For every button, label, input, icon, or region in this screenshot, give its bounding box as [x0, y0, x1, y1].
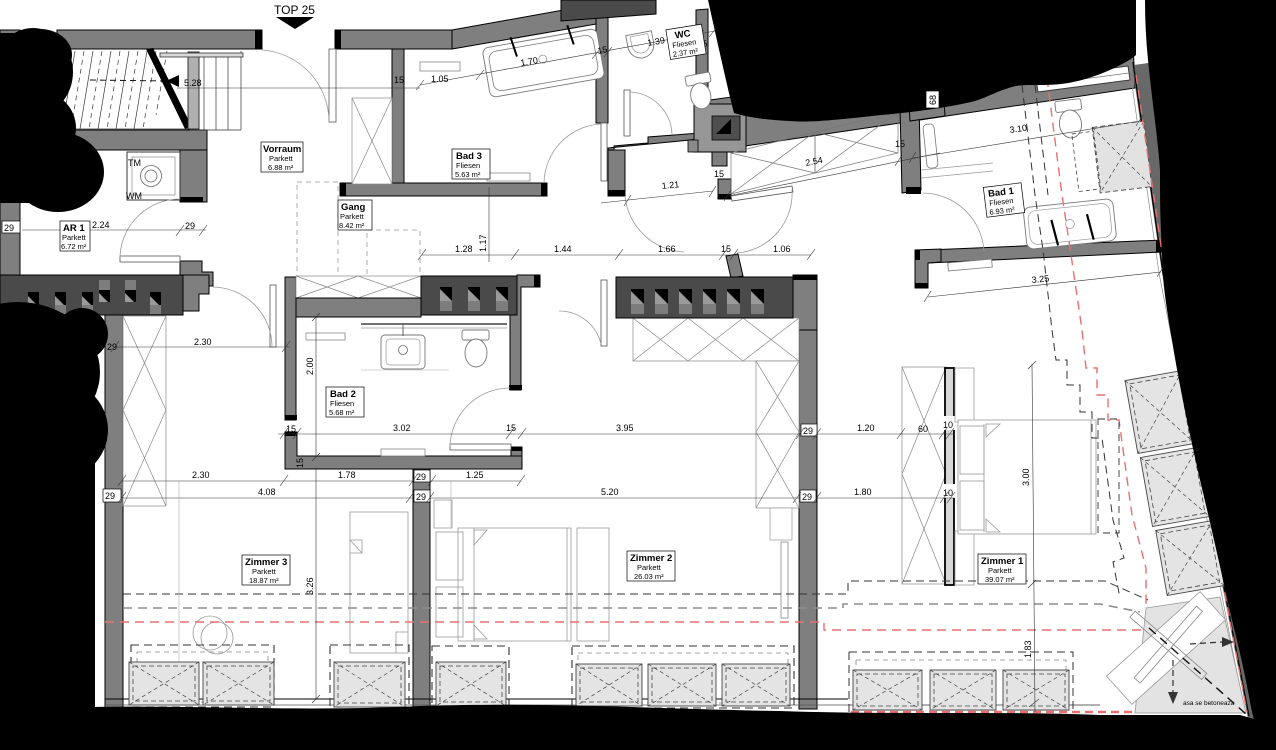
svg-text:29: 29: [802, 492, 812, 502]
svg-text:6.72 m²: 6.72 m²: [61, 242, 87, 251]
svg-text:29: 29: [416, 492, 426, 502]
svg-text:Parkett: Parkett: [340, 212, 365, 221]
svg-text:TOP 25: TOP 25: [274, 3, 315, 17]
svg-text:WM: WM: [126, 191, 142, 201]
svg-text:1.21: 1.21: [661, 179, 679, 191]
svg-text:Parkett: Parkett: [252, 567, 277, 576]
svg-text:29: 29: [416, 472, 426, 482]
svg-text:6.88 m²: 6.88 m²: [268, 163, 294, 172]
svg-text:5.28: 5.28: [184, 78, 202, 88]
svg-text:29: 29: [105, 491, 115, 501]
svg-text:1.28: 1.28: [455, 244, 473, 254]
svg-text:1.25: 1.25: [466, 470, 484, 480]
svg-text:60: 60: [918, 424, 928, 434]
svg-text:Fliesen: Fliesen: [330, 399, 354, 408]
svg-text:15: 15: [506, 423, 516, 433]
svg-text:3.95: 3.95: [616, 423, 634, 433]
svg-text:asa se betoneaza: asa se betoneaza: [1183, 700, 1235, 707]
svg-text:1.06: 1.06: [773, 244, 791, 254]
svg-text:Parkett: Parkett: [637, 563, 662, 572]
svg-text:2.30: 2.30: [192, 470, 210, 480]
svg-text:3.26: 3.26: [305, 577, 315, 595]
svg-text:1.66: 1.66: [658, 244, 676, 254]
svg-text:1.78: 1.78: [338, 470, 356, 480]
svg-text:4.08: 4.08: [258, 487, 276, 497]
svg-text:29: 29: [803, 426, 813, 436]
svg-text:3.25: 3.25: [1031, 273, 1049, 285]
svg-text:8.42 m²: 8.42 m²: [339, 221, 365, 230]
svg-text:68: 68: [928, 95, 938, 105]
svg-text:5.20: 5.20: [601, 487, 619, 497]
svg-text:1.05: 1.05: [431, 74, 449, 84]
svg-text:29: 29: [185, 221, 195, 231]
svg-text:26.03 m²: 26.03 m²: [634, 572, 664, 581]
svg-text:29: 29: [4, 223, 14, 233]
svg-text:1.80: 1.80: [854, 487, 872, 497]
svg-text:15: 15: [714, 169, 724, 179]
svg-text:18.87 m²: 18.87 m²: [249, 576, 279, 585]
svg-text:TM: TM: [128, 158, 141, 168]
svg-text:1.83: 1.83: [1023, 640, 1033, 658]
svg-text:1.20: 1.20: [857, 423, 875, 433]
svg-text:1.17: 1.17: [478, 234, 488, 252]
svg-text:3.00: 3.00: [1021, 468, 1031, 486]
svg-text:2.00: 2.00: [305, 357, 315, 375]
svg-text:2.24: 2.24: [92, 220, 110, 230]
svg-text:15: 15: [721, 244, 731, 254]
svg-text:5.63 m²: 5.63 m²: [455, 170, 481, 179]
svg-text:15: 15: [295, 458, 305, 468]
svg-text:3.02: 3.02: [393, 423, 411, 433]
svg-text:1.44: 1.44: [554, 244, 572, 254]
svg-text:Parkett: Parkett: [988, 566, 1013, 575]
svg-text:Parkett: Parkett: [62, 233, 87, 242]
svg-text:10: 10: [943, 420, 953, 430]
svg-text:Fliesen: Fliesen: [456, 161, 480, 170]
svg-text:15: 15: [895, 139, 905, 149]
svg-text:39.07 m²: 39.07 m²: [985, 575, 1015, 584]
svg-text:2.30: 2.30: [194, 337, 212, 347]
svg-text:15: 15: [394, 75, 404, 85]
svg-text:5.68 m²: 5.68 m²: [329, 408, 355, 417]
svg-text:Parkett: Parkett: [269, 154, 294, 163]
